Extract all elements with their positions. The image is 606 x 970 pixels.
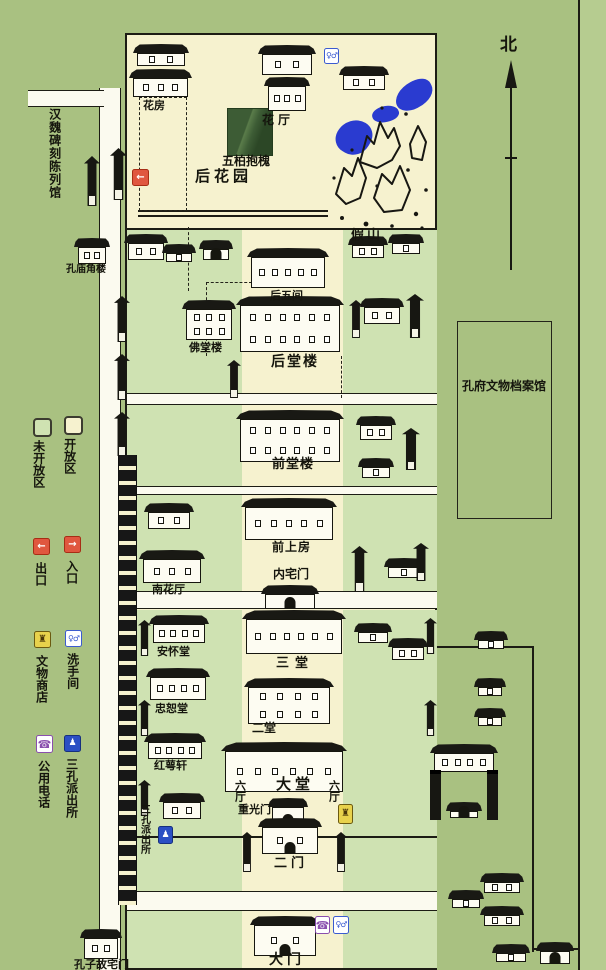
building-pailou-lintel [434,744,494,772]
building-huating-upper [262,45,312,75]
label-qianshangfang: 前上房 [272,541,311,554]
building-e1 [364,298,400,324]
building-row1-d [392,234,420,254]
kong-mansion-map: ← ♀♂ ♜ ♟ ☎ ♀♂ 花房 花厅 五柏抱槐 后花园 假山 后五间 佛堂楼 … [0,0,606,970]
north-west-street [28,90,104,107]
shop-icon-map: ♜ [338,804,353,824]
building-huafang [133,69,188,97]
building-hongexuan [148,733,202,759]
restroom-icon-garden: ♀♂ [324,48,339,64]
building-row1-gate [203,240,229,260]
building-e6 [392,638,424,660]
legend-label-entrance: 入口 [65,560,78,584]
legend-restroom-icon: ♀♂ [65,630,82,647]
street-line [578,0,580,970]
building-santang [246,610,342,654]
label-hongexuan: 红萼轩 [154,760,187,772]
label-ermen: 二门 [274,857,308,871]
label-datang: 大堂 [276,777,314,793]
label-wubaibaohuai: 五柏抱槐 [222,155,270,168]
huafang-enclosure [139,97,187,211]
phone-icon-gate: ☎ [315,916,330,934]
label-guzhaimen: 孔子故宅门 [74,959,129,970]
building-ea4 [452,890,480,908]
building-damen [254,916,316,956]
open-area-swatch [64,416,83,435]
east-wall-v [532,646,534,952]
pailou-pillar-right [487,770,498,820]
building-w1 [148,503,190,529]
label-hanwei-gallery: 汉魏碑刻陈列馆 [48,108,61,199]
path-dash-4 [341,356,342,398]
legend-label-restroom: 洗手间 [66,653,79,689]
label-jiaolou: 孔庙角楼 [66,265,106,276]
front-road [127,891,437,911]
road-1 [127,393,437,405]
building-e5 [358,623,388,643]
west-hatched-wall [118,455,137,905]
label-houwujian: 后五间 [270,290,303,302]
legend-label-shop: 文物商店 [35,655,48,703]
building-neizhaimen [265,585,315,609]
building-guzhaimen [84,929,118,959]
building-houtanglou [240,296,340,352]
pailou-pillar-left [430,770,441,820]
building-ea3 [478,708,502,726]
exit-icon: ← [132,169,149,186]
restroom-icon-gate: ♀♂ [333,916,349,934]
building-zhongshutang [150,668,206,700]
building-nanhuating [143,550,201,583]
road-2 [127,486,437,495]
path-dash-3 [206,282,252,283]
label-huating: 花厅 [262,114,294,127]
building-e3 [362,458,390,478]
label-jiashan: 假山 [351,229,383,243]
legend-police-icon: ♟ [64,735,81,752]
building-houwujian [251,248,325,288]
building-e2 [360,416,392,440]
label-damen: 大门 [269,953,305,968]
terrace-line-2 [138,215,328,217]
legend-label-police: 三孔派出所 [65,758,78,818]
label-anhuaitang: 安怀堂 [157,646,190,658]
building-ertang [248,678,330,724]
label-police-station: 三孔派出所 [138,804,149,854]
label-nanhuating: 南花厅 [152,584,185,596]
building-row1-a [128,234,164,260]
legend-exit-icon: ← [33,538,50,555]
building-anhuaitang [153,615,205,643]
building-jiaolou [78,238,106,264]
building-ea6 [484,906,520,926]
legend-label-phone: 公用电话 [37,760,50,808]
police-icon-map: ♟ [158,826,173,844]
building-ermen [262,818,318,854]
label-chongguangmen: 重光门 [238,804,271,816]
legend-phone-icon: ☎ [36,735,53,753]
building-garden-ne [343,66,385,90]
legend-label-open: 开放区 [63,438,76,474]
street-strip [580,0,606,970]
label-qiantanglou: 前堂楼 [272,458,314,472]
building-ea7 [496,944,526,962]
label-liuting-left: 六厅 [234,780,246,802]
building-fotanglou [186,300,232,340]
label-zhongshutang: 忠恕堂 [155,703,188,715]
label-north: 北 [500,37,517,55]
east-court-upper [343,228,437,595]
building-qiantanglou [240,410,340,462]
building-police-station [163,793,201,819]
label-ertang: 二堂 [252,722,276,735]
legend-shop-icon: ♜ [34,631,51,648]
north-arrow-icon [503,58,519,273]
building-huating [268,77,306,111]
east-court-bottom [343,911,437,968]
label-houhuayuan: 后花园 [195,169,252,185]
rockery-drawing [322,98,435,236]
building-ea5 [484,873,520,893]
building-ea1 [478,631,504,647]
legend-entrance-icon: → [64,536,81,553]
building-qianshangfang [245,498,333,540]
closed-area-swatch [33,418,52,437]
label-houtanglou: 后堂楼 [271,355,319,370]
legend-label-closed: 未开放区 [32,440,45,488]
building-garden-north [137,44,185,66]
label-archive: 孔府文物档案馆 [458,380,550,393]
label-neizhaimen: 内宅门 [273,568,309,581]
building-row1-b [166,244,192,260]
building-pailou-gate [450,802,478,818]
tower-w1 [84,156,100,206]
archive-outline [457,321,552,519]
legend-label-exit: 出口 [34,562,47,586]
label-santang: 三堂 [276,657,314,671]
label-huafang: 花房 [143,100,165,112]
label-fotanglou: 佛堂楼 [189,342,222,354]
building-ea2 [478,678,502,696]
label-liuting-right: 六厅 [328,780,340,802]
building-e4 [388,558,420,578]
building-ea-gate [540,942,570,964]
west-court-bottom [127,911,242,968]
